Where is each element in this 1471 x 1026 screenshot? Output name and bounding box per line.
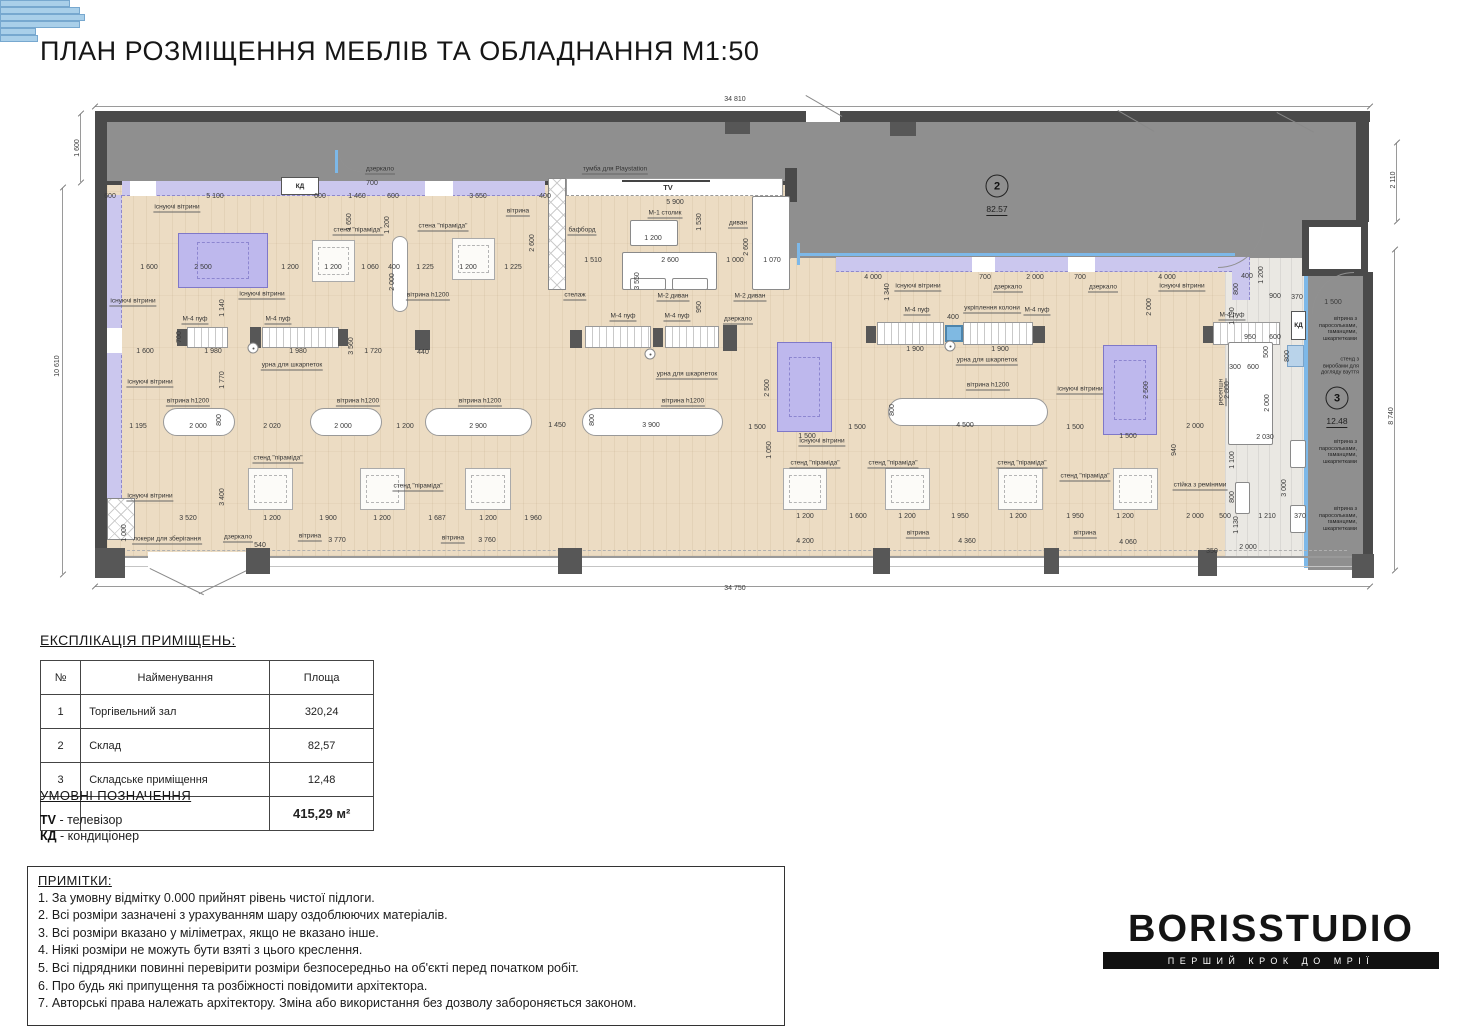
dim-label: 2 500 [194, 264, 212, 272]
pier [873, 548, 890, 574]
wall-right-lower [1363, 272, 1373, 572]
dim-label: 2 500 [764, 379, 772, 397]
dim-label: 1 460 [348, 193, 366, 201]
dim-label: 700 [979, 274, 991, 282]
dim-label: 1 130 [1233, 516, 1241, 534]
dim-label: 3 550 [634, 272, 642, 290]
table-row: 1Торгівельний зал320,24 [41, 695, 374, 729]
pouf-bench [665, 326, 719, 348]
dim-label: 2 110 [1390, 172, 1398, 189]
plan-annotation: диван [728, 220, 748, 229]
dim-label: 1 510 [584, 257, 602, 265]
plan-annotation: стенд "піраміда" [392, 483, 443, 492]
room-area: 82.57 [986, 204, 1007, 216]
plan-annotation: існуючі вітрини [798, 438, 845, 447]
plan-annotation: М-4 пуф [264, 316, 291, 325]
plan-annotation: дзеркало [223, 534, 253, 543]
dim-label: 370 [1294, 513, 1306, 521]
plan-annotation: стенд з виробами для догляду взуття [1320, 356, 1360, 376]
dim-label: 3 400 [219, 488, 227, 506]
dim-label: 1 500 [1119, 433, 1137, 441]
table-cell: 2 [41, 729, 81, 763]
dim-label: 1 950 [1066, 513, 1084, 521]
plan-annotation: стенд "піраміда" [789, 460, 840, 469]
dim-label: 5 900 [666, 199, 684, 207]
plan-annotation: урна для шкарпеток [656, 371, 718, 380]
dim-label: 2 000 [389, 273, 397, 291]
dim-label: 2 000 [1264, 394, 1272, 412]
dim-label: 2 000 [1026, 274, 1044, 282]
dim-label: 1 210 [1258, 513, 1276, 521]
dim-label: 940 [1171, 444, 1179, 456]
furniture-box [1235, 482, 1250, 514]
dim-label: 2 000 [334, 423, 352, 431]
pier [1044, 548, 1059, 574]
storefront-line [95, 556, 1370, 558]
dim-label: 800 [1284, 350, 1292, 362]
pouf-bench [585, 326, 651, 348]
pyramid-stand [248, 468, 293, 510]
plan-annotation: М-4 пуф [663, 313, 690, 322]
dim-label: 300 [1229, 364, 1241, 372]
vitrine-h1200 [310, 408, 382, 436]
plan-annotation: існуючі вітрини [153, 204, 200, 213]
dim-label: 1 200 [479, 515, 497, 523]
dim-label: 1 200 [898, 513, 916, 521]
pier [1352, 554, 1374, 578]
table-header-cell: № [41, 661, 81, 695]
wall-right-upper [1356, 122, 1369, 222]
notes-box: ПРИМІТКИ: 1. За умовну відмітку 0.000 пр… [27, 866, 785, 1026]
plan-annotation: М-1 столик [648, 210, 683, 219]
dim-label: 1 225 [416, 264, 434, 272]
note-line: 3. Всі розміри вказано у міліметрах, якщ… [38, 925, 774, 943]
dim-label: 800 [1233, 283, 1241, 295]
pyramid-stand [1113, 468, 1158, 510]
plan-annotation: М-2 диван [733, 293, 766, 302]
pier [725, 122, 750, 134]
plan-annotation: вітрина h1200 [458, 398, 502, 407]
mirror-block [1203, 326, 1213, 343]
dim-label: 4 200 [796, 538, 814, 546]
strip-gap [972, 257, 995, 272]
strip-gap [107, 328, 122, 353]
dim-label: 34 810 [724, 96, 745, 104]
plan-annotation: вітрина h1200 [166, 398, 210, 407]
dim-label: 370 [1291, 294, 1303, 302]
legend-heading: УМОВНІ ПОЗНАЧЕННЯ [40, 788, 191, 803]
dim-label: 1 060 [361, 264, 379, 272]
table-cell: 12,48 [270, 763, 374, 797]
entrance-door-leaf [150, 568, 204, 595]
pier [246, 548, 270, 574]
mirror-block [723, 325, 737, 351]
dim-label: 1 960 [524, 515, 542, 523]
plan-annotation: М-4 пуф [1023, 307, 1050, 316]
table-cell: Торгівельний зал [81, 695, 270, 729]
dim-label: 4 000 [864, 274, 882, 282]
dim-label: 700 [176, 331, 184, 343]
dim-label: 500 [1263, 346, 1271, 358]
pier [890, 122, 916, 136]
studio-logo: BORISSTUDIO ПЕРШИЙ КРОК ДО МРІЇ [1103, 910, 1439, 969]
dim-label: 1 900 [991, 346, 1009, 354]
table-cell: 82,57 [270, 729, 374, 763]
total-area: 415,29 м² [270, 797, 374, 831]
dim-label: 3 560 [348, 337, 356, 355]
table-cell: 1 [41, 695, 81, 729]
plan-annotation: існуючі вітрини [894, 283, 941, 292]
plan-annotation: існуючі вітрини [1056, 386, 1103, 395]
plan-annotation: стенд "піраміда" [1059, 473, 1110, 482]
plan-annotation: дзеркало [723, 316, 753, 325]
plan-annotation: М-4 пуф [181, 316, 208, 325]
plan-annotation: вітрина [506, 208, 530, 217]
room-number: 3 [1326, 387, 1349, 410]
floor-plan: КД КД 34 81034 7501 60010 6102 1108 7406… [0, 0, 1471, 620]
plan-annotation: стена "піраміда" [333, 227, 384, 236]
pier [558, 548, 582, 574]
plan-annotation: М-4 пуф [1218, 312, 1245, 321]
plan-annotation: локери для зберігання [132, 536, 202, 545]
plan-annotation: існуючі вітрини [126, 379, 173, 388]
door-leaf [797, 243, 800, 265]
dim-line-top [95, 106, 1370, 107]
table-row: 2Склад82,57 [41, 729, 374, 763]
room-area: 12.48 [1326, 416, 1347, 428]
dim-label: 1 980 [289, 348, 307, 356]
table-cell: Склад [81, 729, 270, 763]
entrance-door-leaf [199, 567, 253, 594]
dim-label: 950 [1244, 334, 1256, 342]
storage-glazing-line [800, 253, 1235, 256]
storefront-line-2 [95, 566, 1370, 567]
dim-label: 1 225 [504, 264, 522, 272]
dim-label: 4 360 [958, 538, 976, 546]
dim-label: 1 600 [849, 513, 867, 521]
dim-label: 800 [216, 414, 224, 426]
dim-label: 440 [417, 349, 429, 357]
sock-bin [645, 349, 656, 360]
dim-label: 350 [1206, 548, 1218, 556]
strip-gap [425, 181, 453, 196]
dim-label: 3 650 [469, 193, 487, 201]
mirror-block [338, 329, 348, 346]
dim-label: 600 [1247, 364, 1259, 372]
dim-label: 1 500 [748, 424, 766, 432]
vitrine-h1200 [163, 408, 235, 436]
dim-label: 2 600 [743, 238, 751, 256]
glazing-segment [0, 7, 80, 14]
plan-annotation: урна для шкарпеток [956, 357, 1018, 366]
mirror-block [1033, 326, 1045, 343]
plan-annotation: вітрина [441, 535, 465, 544]
dim-label: 3 900 [642, 422, 660, 430]
dim-label: 1 200 [1258, 266, 1266, 284]
dim-label: 1 950 [951, 513, 969, 521]
plan-annotation: М-4 пуф [903, 307, 930, 316]
logo-tagline: ПЕРШИЙ КРОК ДО МРІЇ [1103, 952, 1439, 969]
dim-label: 1 140 [219, 299, 227, 317]
dim-label: 2 030 [1256, 434, 1274, 442]
dim-label: 4 060 [1119, 539, 1137, 547]
dim-label: 1 200 [1009, 513, 1027, 521]
dim-label: 2 000 [1186, 513, 1204, 521]
dim-label: 1 500 [848, 424, 866, 432]
wall-left [95, 111, 107, 578]
room-number: 2 [986, 175, 1009, 198]
dim-label: 1 200 [373, 515, 391, 523]
dim-label: 1 200 [796, 513, 814, 521]
dim-label: 4 000 [1158, 274, 1176, 282]
mirror-block [653, 328, 663, 347]
storefront-dashed [107, 550, 1347, 551]
sock-bin [248, 343, 259, 354]
air-conditioner-box: КД [1291, 311, 1306, 340]
dim-label: 1 200 [644, 235, 662, 243]
vestibule-interior [1309, 227, 1361, 269]
dim-label: 600 [104, 193, 116, 201]
upper-strip-zone [107, 122, 790, 184]
glazing-segment [0, 0, 70, 7]
plan-annotation: М-2 диван [656, 293, 689, 302]
plan-annotation: вітрина з паросольками, гаманцями, шкарп… [1318, 316, 1358, 342]
pouf-bench [262, 327, 339, 348]
dim-label: 600 [314, 193, 326, 201]
pouf-bench [877, 322, 944, 345]
existing-vitrine [777, 342, 832, 432]
dim-label: 1 200 [324, 264, 342, 272]
vitrine-h1200 [425, 408, 532, 436]
dim-label: 600 [387, 193, 399, 201]
dim-label: 400 [539, 193, 551, 201]
pyramid-stand [998, 468, 1043, 510]
dim-label: 1 200 [263, 515, 281, 523]
plan-annotation: вітрина [906, 530, 930, 539]
pyramid-stand [452, 238, 495, 280]
dim-label: 2 020 [263, 423, 281, 431]
glazing-segment [0, 21, 80, 28]
plan-annotation: дзеркало [365, 166, 395, 175]
dim-label: 1 050 [766, 441, 774, 459]
dim-label: 2 600 [529, 234, 537, 252]
dim-label: 900 [1269, 293, 1281, 301]
note-line: 2. Всі розміри зазначені з урахуванням ш… [38, 907, 774, 925]
dim-label: 1 000 [726, 257, 744, 265]
note-line: 1. За умовну відмітку 0.000 прийнят ріве… [38, 890, 774, 908]
dim-label: 950 [696, 301, 704, 313]
dim-label: 1 000 [121, 524, 129, 542]
dim-label: 800 [1229, 491, 1237, 503]
dim-label: 3 770 [328, 537, 346, 545]
dim-label: 1 100 [1229, 451, 1237, 469]
plan-annotation: бафборд [567, 227, 596, 236]
plan-annotation: стенд "піраміда" [996, 460, 1047, 469]
plan-annotation: дзеркало [993, 284, 1023, 293]
pouf-bench [187, 327, 228, 348]
dim-label: 600 [1269, 334, 1281, 342]
plan-annotation: М-4 пуф [609, 313, 636, 322]
plan-annotation: стійка з ремінями [1173, 482, 1228, 491]
legend-abbr: TV [40, 813, 56, 827]
logo-name: BORISSTUDIO [1103, 910, 1439, 948]
dim-label: 1 600 [140, 264, 158, 272]
plan-annotation: існуючі вітрини [238, 291, 285, 300]
table-cell: 320,24 [270, 695, 374, 729]
plan-annotation: тумба для Playstation [582, 166, 648, 175]
note-line: 6. Про будь які припущення та розбіжност… [38, 978, 774, 996]
dim-label: 34 750 [724, 585, 745, 593]
legend-item: КД - кондиціонер [40, 829, 191, 843]
dim-label: 1 200 [459, 264, 477, 272]
dim-label: 1 600 [74, 139, 82, 157]
plan-annotation: дзеркало [1088, 284, 1118, 293]
column-reinforcement [945, 325, 963, 342]
dim-label: 3 520 [179, 515, 197, 523]
plan-annotation: існуючі вітрини [109, 298, 156, 307]
note-line: 4. Ніякі розміри не можуть бути взяті з … [38, 942, 774, 960]
kd-label: КД [1294, 322, 1303, 329]
dim-label: 1 720 [364, 348, 382, 356]
plan-annotation: вітрина [298, 533, 322, 542]
dim-label: 1 980 [204, 348, 222, 356]
plan-annotation: існуючі вітрини [1158, 283, 1205, 292]
dim-label: 1 500 [1066, 424, 1084, 432]
dim-label: 1 200 [1116, 513, 1134, 521]
dim-label: 2 500 [1143, 381, 1151, 399]
dim-label: 1 687 [428, 515, 446, 523]
legend-item: TV - телевізор [40, 813, 191, 827]
pyramid-stand [885, 468, 930, 510]
table-header-cell: Площа [270, 661, 374, 695]
dim-label: 3 000 [1281, 479, 1289, 497]
mirror-block [570, 330, 582, 348]
pouf-bench [963, 322, 1033, 345]
furniture-box [1290, 440, 1306, 468]
plan-annotation: вітрина h1200 [336, 398, 380, 407]
pier [95, 548, 125, 578]
notes-heading: ПРИМІТКИ: [38, 872, 774, 890]
glazing-segment [0, 35, 38, 42]
mirror-block [866, 326, 876, 343]
dim-label: 10 610 [54, 355, 62, 376]
dim-label: 2 000 [1239, 544, 1257, 552]
dim-label: 1 200 [384, 216, 392, 234]
plan-annotation: вітрина h1200 [966, 382, 1010, 391]
plan-annotation: стенд "піраміда" [252, 455, 303, 464]
dim-label: 1 195 [129, 423, 147, 431]
plan-annotation: стенд "піраміда" [867, 460, 918, 469]
dim-label: 1 070 [763, 257, 781, 265]
dim-label: 2 600 [661, 257, 679, 265]
explication-heading: ЕКСПЛІКАЦІЯ ПРИМІЩЕНЬ: [40, 632, 374, 648]
dim-label: 1 500 [1324, 299, 1342, 307]
glazing-segment [0, 14, 85, 21]
dim-label: 2 900 [469, 423, 487, 431]
dim-label: 1 530 [696, 213, 704, 231]
sock-bin [945, 341, 956, 352]
dim-label: 5 100 [206, 193, 224, 201]
dim-label: 800 [589, 414, 597, 426]
dim-label: 1 200 [396, 423, 414, 431]
note-line: 7. Авторські права належать архітектору.… [38, 995, 774, 1013]
entrance-gap [148, 552, 252, 570]
plan-annotation: ресепшн [1218, 378, 1227, 406]
dim-line-left [62, 188, 63, 574]
storage-room-2 [790, 122, 1358, 258]
dim-label: 2 000 [189, 423, 207, 431]
note-line: 5. Всі підрядники повинні перевірити роз… [38, 960, 774, 978]
legend-abbr: КД [40, 829, 57, 843]
pyramid-stand [465, 468, 511, 510]
tv-unit [622, 180, 710, 182]
pyramid-stand [783, 468, 827, 510]
vitrine-strip-top-right [836, 257, 1232, 272]
dim-label: 8 740 [1388, 407, 1396, 425]
wall-top [95, 111, 1370, 122]
furniture-box [672, 278, 708, 290]
kd-label: КД [296, 183, 305, 190]
glazing-segment [0, 28, 36, 35]
plan-annotation: урна для шкарпеток [261, 362, 323, 371]
plan-annotation: вітрина з паросольками, гаманцями, шкарп… [1318, 439, 1358, 465]
plan-annotation: укріплення колони [963, 305, 1021, 314]
dim-label: 400 [947, 314, 959, 322]
dim-label: 1 450 [548, 422, 566, 430]
dim-label: 3 760 [478, 537, 496, 545]
dim-label: 400 [1241, 273, 1253, 281]
dim-label: 1 200 [281, 264, 299, 272]
dim-label: 700 [1074, 274, 1086, 282]
plan-annotation: TV [662, 184, 674, 192]
strip-gap [130, 181, 156, 196]
plan-annotation: вітрина h1200 [406, 292, 450, 301]
plan-annotation: вітрина [1073, 530, 1097, 539]
dim-label: 800 [889, 404, 897, 416]
dim-label: 400 [388, 264, 400, 272]
table-header-cell: Найменування [81, 661, 270, 695]
plan-annotation: стелаж [563, 292, 586, 301]
plan-annotation: вітрина з паросольками, гаманцями, шкарп… [1318, 506, 1358, 532]
dim-label: 1 340 [884, 283, 892, 301]
dim-label: 1 900 [319, 515, 337, 523]
legend: УМОВНІ ПОЗНАЧЕННЯ TV - телевізорКД - кон… [40, 788, 191, 845]
plan-annotation: існуючі вітрини [126, 493, 173, 502]
dim-label: 540 [254, 542, 266, 550]
dim-label: 2 000 [1186, 423, 1204, 431]
dim-label: 700 [366, 180, 378, 188]
dim-label: 2 000 [1146, 298, 1154, 316]
dim-label: 1 600 [136, 348, 154, 356]
dim-label: 500 [1219, 513, 1231, 521]
dim-label: 4 500 [956, 422, 974, 430]
dim-label: 1 770 [219, 371, 227, 389]
strip-gap [1068, 257, 1095, 272]
mirror-block [415, 330, 430, 350]
dim-label: 1 900 [906, 346, 924, 354]
pyramid-stand [312, 240, 355, 282]
existing-vitrine [178, 233, 268, 288]
plan-annotation: вітрина h1200 [661, 398, 705, 407]
plan-annotation: стена "піраміда" [418, 223, 469, 232]
furniture-box [752, 196, 790, 290]
